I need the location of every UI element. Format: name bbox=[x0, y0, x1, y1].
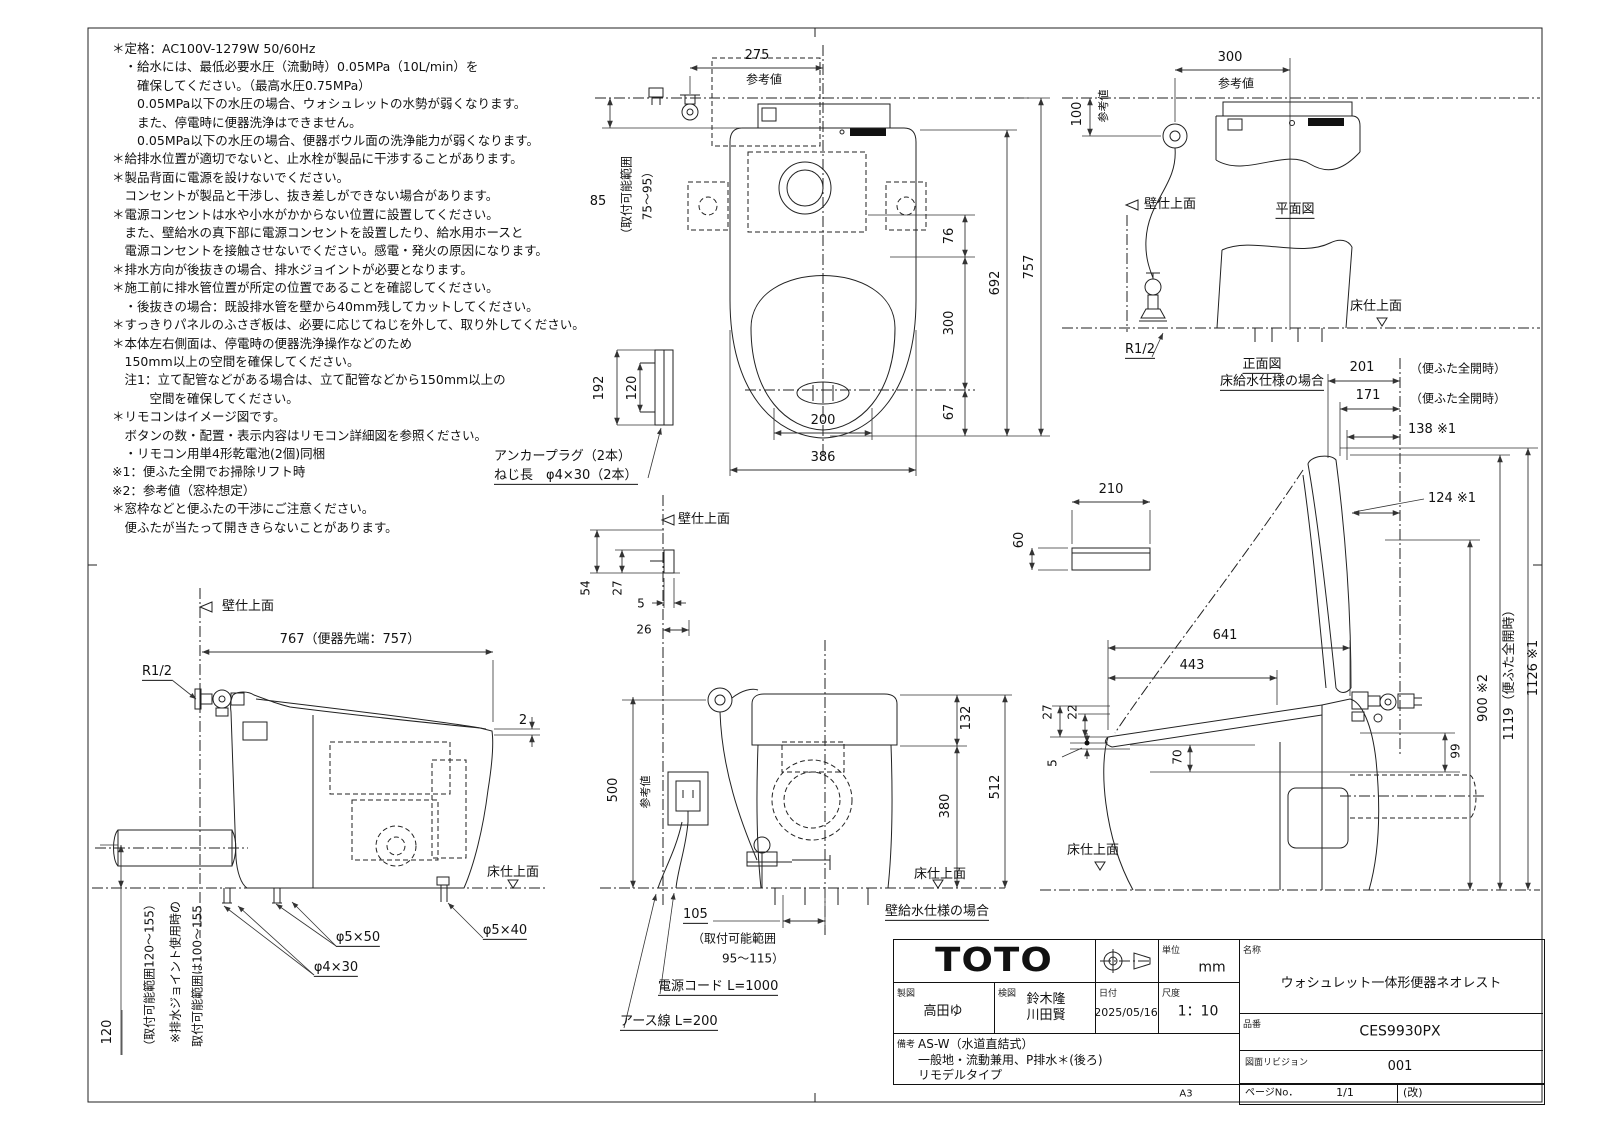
floor-finish-label-rv: 床仕上面 bbox=[914, 868, 966, 882]
part-number: CES9930PX bbox=[1359, 1024, 1440, 1039]
toto-logo: TOTO bbox=[935, 940, 1053, 979]
checked-label: 検図 bbox=[998, 986, 1016, 999]
dim-100: 100 bbox=[1071, 102, 1085, 127]
kai-mark: (改) bbox=[1403, 1087, 1423, 1099]
name-label: 名称 bbox=[1243, 943, 1261, 956]
dim-105-range-1: （取付可能範囲 bbox=[692, 932, 776, 945]
dim-380: 380 bbox=[939, 794, 953, 819]
dim-767: 767（便器先端：757） bbox=[280, 633, 421, 647]
floor-finish-label-so: 床仕上面 bbox=[1067, 844, 1119, 858]
anchor-plug-note-1: アンカープラグ（2本） bbox=[494, 450, 631, 464]
unit-label: 単位 bbox=[1162, 943, 1180, 956]
dim-85: 85 bbox=[590, 195, 607, 209]
dim-67: 67 bbox=[943, 404, 957, 421]
dim-60-remote: 60 bbox=[1013, 532, 1027, 549]
sheet-size: A3 bbox=[1179, 1089, 1192, 1100]
wall-finish-label-tr: 壁仕上面 bbox=[1144, 198, 1196, 212]
dim-443: 443 bbox=[1180, 659, 1205, 673]
dim-275-ref: 参考値 bbox=[746, 73, 782, 86]
wall-supply-caption: 壁給水仕様の場合 bbox=[885, 905, 989, 921]
drain-range-note-1: （取付可能範囲120～155） bbox=[143, 898, 156, 1052]
scale-value: 1：10 bbox=[1178, 1004, 1219, 1019]
dim-54: 54 bbox=[579, 580, 592, 595]
floor-finish-label-tr: 床仕上面 bbox=[1350, 300, 1402, 314]
drawn-value: 高田ゆ bbox=[923, 1005, 962, 1019]
dim-2: 2 bbox=[519, 714, 527, 728]
dim-5-rv: 5 bbox=[637, 597, 645, 610]
screw-label-4x30: φ4×30 bbox=[314, 961, 358, 977]
drain-range-note-3: 取付可能範囲は100～155 bbox=[191, 905, 204, 1047]
dim-124: 124 ※1 bbox=[1428, 492, 1476, 506]
wall-finish-label-sc: 壁仕上面 bbox=[222, 600, 274, 614]
dim-300: 300 bbox=[943, 311, 957, 336]
dim-138: 138 ※1 bbox=[1408, 423, 1456, 437]
dim-201-note: （便ふた全開時） bbox=[1410, 362, 1506, 375]
supply-thread-label-tr: R1/2 bbox=[1125, 343, 1155, 359]
side-closed-view-art bbox=[92, 588, 545, 1055]
dim-120-drain: 120 bbox=[101, 1020, 115, 1045]
dim-27-rv: 27 bbox=[611, 580, 624, 595]
dim-300-tr: 300 bbox=[1218, 51, 1243, 65]
dim-201: 201 bbox=[1350, 361, 1375, 375]
dim-105-range-2: 95～115） bbox=[722, 952, 784, 965]
front-view-subtitle: 床給水仕様の場合 bbox=[1220, 375, 1324, 391]
dim-210-remote: 210 bbox=[1099, 483, 1124, 497]
screw-label-5x40: φ5×40 bbox=[483, 924, 527, 940]
dim-641: 641 bbox=[1213, 629, 1238, 643]
screw-label-5x50: φ5×50 bbox=[336, 931, 380, 947]
power-cord-label: 電源コード L=1000 bbox=[658, 980, 778, 996]
dim-200: 200 bbox=[811, 414, 836, 428]
dim-85-range-2: 75～95） bbox=[641, 166, 654, 221]
dim-105: 105 bbox=[683, 908, 708, 924]
dim-512: 512 bbox=[989, 775, 1003, 800]
dim-757: 757 bbox=[1023, 255, 1037, 280]
drawing-sheet: ＊定格：AC100V-1279W 50/60Hz ・給水には、最低必要水圧（流動… bbox=[0, 0, 1600, 1131]
remarks-label: 備考 bbox=[897, 1037, 915, 1050]
date-label: 日付 bbox=[1099, 986, 1117, 999]
plan-view-title: 平面図 bbox=[1275, 203, 1314, 219]
dim-22: 22 bbox=[1066, 704, 1079, 719]
scale-label: 尺度 bbox=[1162, 986, 1180, 999]
dim-500: 500 bbox=[607, 778, 621, 803]
page-value: 1/1 bbox=[1336, 1087, 1354, 1099]
dim-692: 692 bbox=[989, 271, 1003, 296]
dim-132: 132 bbox=[960, 706, 974, 731]
date-value: 2025/05/16 bbox=[1094, 1007, 1157, 1019]
dim-386: 386 bbox=[811, 451, 836, 465]
page-label: ページNo． bbox=[1245, 1088, 1298, 1099]
dim-1119: 1119（便ふた全開時） bbox=[1503, 603, 1517, 740]
dim-85-range-1: （取付可能範囲 bbox=[620, 156, 633, 240]
dim-500-ref: 参考値 bbox=[640, 776, 652, 809]
dim-5-so: 5 bbox=[1046, 759, 1059, 767]
dim-120-plate: 120 bbox=[626, 376, 640, 401]
product-name: ウォシュレット一体形便器ネオレスト bbox=[1281, 977, 1502, 991]
dim-27-so: 27 bbox=[1041, 704, 1054, 719]
dim-171: 171 bbox=[1356, 389, 1381, 403]
earth-wire-label: アース線 L=200 bbox=[620, 1015, 718, 1031]
revision-value: 001 bbox=[1388, 1060, 1413, 1074]
revision-label: 図面リビジョン bbox=[1245, 1055, 1308, 1068]
dim-100-ref: 参考値 bbox=[1098, 90, 1110, 123]
supply-thread-label-sc: R1/2 bbox=[142, 665, 172, 681]
remarks-value: AS-W（水道直結式） 一般地・流動兼用、P排水＊(後ろ) リモデルタイプ bbox=[918, 1037, 1103, 1084]
front-view-title: 正面図 bbox=[1242, 358, 1281, 374]
dim-192: 192 bbox=[593, 376, 607, 401]
dim-275: 275 bbox=[745, 49, 770, 63]
dim-26: 26 bbox=[636, 623, 651, 636]
dim-900: 900 ※2 bbox=[1477, 674, 1491, 722]
side-open-view-art bbox=[1032, 358, 1540, 890]
dim-1126: 1126 ※1 bbox=[1527, 640, 1541, 696]
drawn-label: 製図 bbox=[897, 986, 915, 999]
dim-300-ref: 参考値 bbox=[1218, 77, 1254, 90]
dim-70: 70 bbox=[1171, 749, 1184, 764]
anchor-plug-note-2: ねじ長 φ4×30（2本） bbox=[494, 469, 638, 485]
floor-finish-label-sc: 床仕上面 bbox=[487, 866, 539, 880]
wall-finish-label-rv: 壁仕上面 bbox=[678, 513, 730, 527]
dim-171-note: （便ふた全開時） bbox=[1410, 392, 1506, 405]
part-label: 品番 bbox=[1243, 1017, 1261, 1030]
dim-99: 99 bbox=[1449, 743, 1462, 758]
dim-76: 76 bbox=[943, 228, 957, 245]
unit-value: mm bbox=[1198, 960, 1225, 975]
checked-value: 鈴木隆 川田賢 bbox=[1026, 992, 1065, 1024]
drain-range-note-2: ※排水ジョイント使用時の bbox=[169, 901, 182, 1043]
